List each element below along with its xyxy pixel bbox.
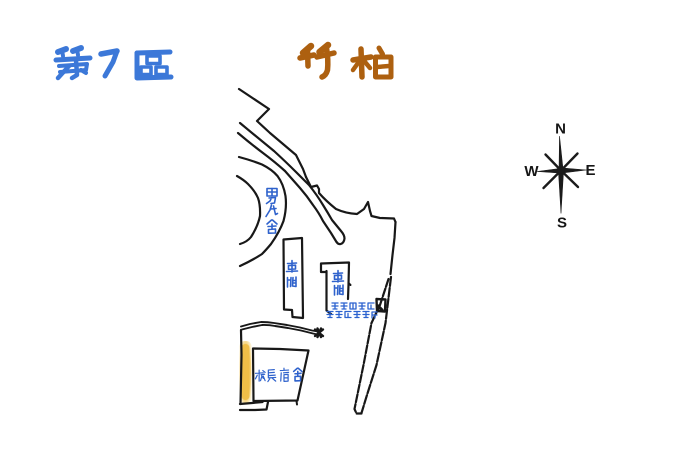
svg-text:E: E [585, 162, 595, 179]
svg-text:N: N [555, 121, 566, 138]
svg-text:W: W [524, 163, 539, 180]
svg-text:S: S [557, 215, 567, 232]
